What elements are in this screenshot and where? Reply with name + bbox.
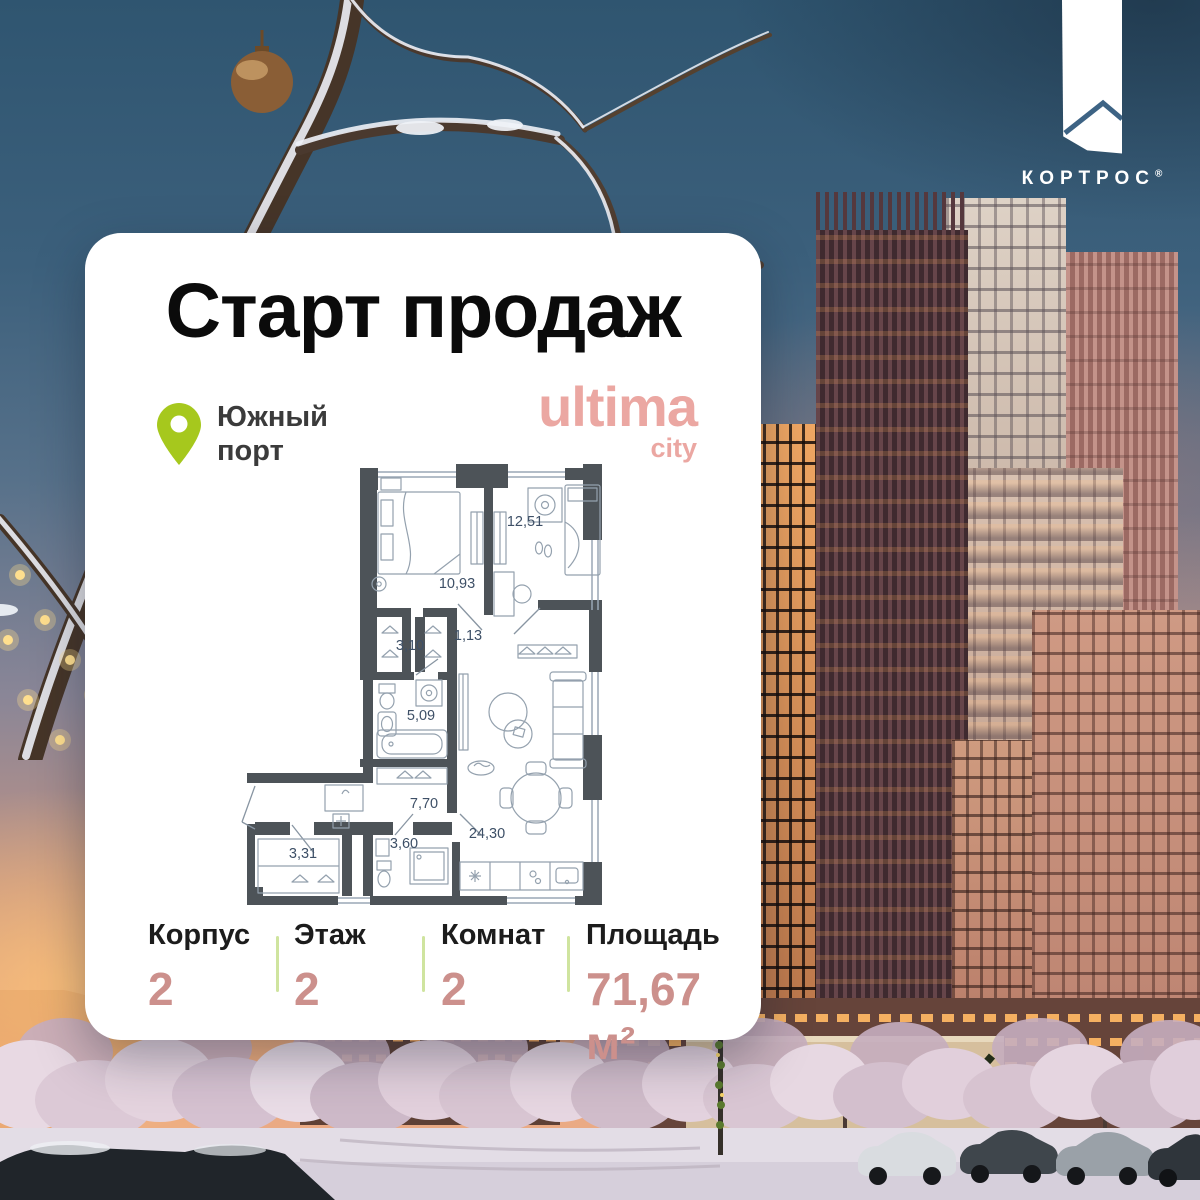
brand-name: КОРТРОС	[1022, 168, 1155, 189]
promo-card: Старт продаж Южный порт ultima city	[85, 233, 761, 1040]
stat-value: 2	[294, 962, 366, 1016]
stat-label: Комнат	[441, 919, 545, 952]
stat-divider	[422, 936, 425, 992]
stat-label: Площадь	[586, 919, 761, 952]
ornament-ball	[231, 30, 293, 113]
stat-ploshchad: Площадь 71,67 м²	[586, 919, 761, 1070]
registered-mark: ®	[1155, 169, 1162, 180]
stat-korpus: Корпус 2	[148, 919, 250, 1016]
kortros-logo: КОРТРОС®	[1002, 0, 1182, 190]
kortros-wordmark: КОРТРОС®	[1002, 168, 1182, 190]
building-fin-crown	[816, 192, 968, 234]
stat-divider	[276, 936, 279, 992]
stat-value: 2	[148, 962, 250, 1016]
kortros-flag-icon	[1062, 0, 1122, 155]
stat-etazh: Этаж 2	[294, 919, 366, 1016]
ad-creative: КОРТРОС® Старт продаж Южный порт ultima …	[0, 0, 1200, 1200]
stat-value: 71,67 м²	[586, 962, 761, 1070]
stat-label: Этаж	[294, 919, 366, 952]
stat-divider	[567, 936, 570, 992]
stat-value: 2	[441, 962, 545, 1016]
roof-chevron-icon	[1062, 95, 1122, 135]
stat-label: Корпус	[148, 919, 250, 952]
apartment-stats: Корпус 2 Этаж 2 Комнат 2 Площадь 71,67 м…	[85, 233, 761, 1040]
stat-komnat: Комнат 2	[441, 919, 545, 1016]
